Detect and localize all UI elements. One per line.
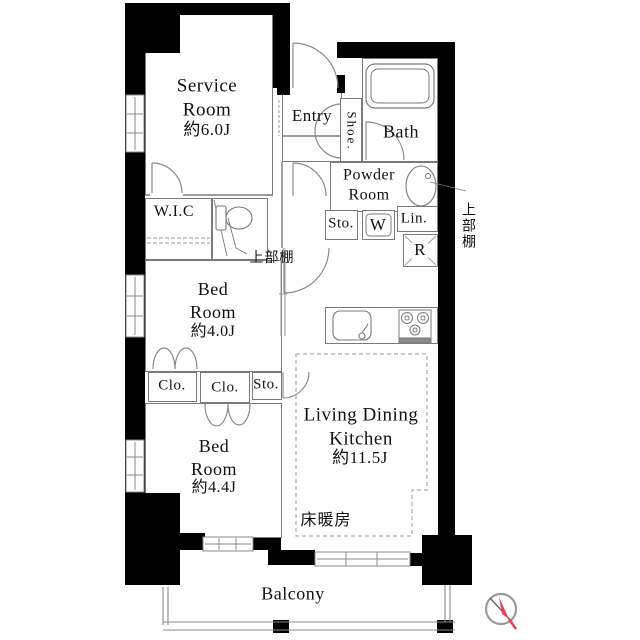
- toilet-shelf-label: 上部棚: [250, 249, 295, 267]
- washer-label: W: [370, 214, 387, 236]
- ldk-label: Living Dining Kitchen: [296, 404, 426, 453]
- linen-label: Lin.: [401, 209, 428, 228]
- closet-2-label: Clo.: [211, 378, 238, 397]
- floorplan-linework: [0, 0, 640, 640]
- bed-room-1-label: Bed Room: [178, 278, 248, 324]
- bed-storage-label: Sto.: [253, 375, 279, 394]
- powder-room-label: Powder Room: [325, 166, 413, 207]
- wall-shelf-label: 上部棚: [459, 202, 477, 250]
- ldk-size: 約11.5J: [332, 447, 388, 469]
- wall-thin-lines: [145, 136, 340, 248]
- closet-1-label: Clo.: [158, 376, 185, 395]
- closet-1-bifold: [153, 348, 197, 369]
- window-bed1-left: [126, 275, 144, 337]
- service-room-size: 約6.0J: [183, 119, 230, 141]
- window-service-left: [126, 95, 144, 152]
- closet-2-bifold: [205, 404, 250, 426]
- window-bed2-bottom: [203, 537, 253, 551]
- wic-label: W.I.C: [154, 202, 194, 222]
- hall-storage-label: Sto.: [328, 214, 354, 233]
- shoe-label: Shoe.: [343, 111, 360, 150]
- floor-heating-label: 床暖房: [300, 511, 351, 531]
- bed-room-2-label: Bed Room: [179, 435, 249, 481]
- bath-label: Bath: [383, 120, 419, 143]
- service-room-label: Service Room: [151, 75, 263, 124]
- wic-hanger-pipe: [147, 238, 210, 243]
- fridge-label: R: [412, 239, 428, 261]
- bed-room-1-size: 約4.0J: [191, 322, 236, 342]
- compass-icon: [486, 594, 516, 629]
- kitchen-sink: [333, 311, 371, 340]
- bed-room-2-size: 約4.4J: [192, 478, 237, 498]
- wic-door-arc: [152, 163, 182, 193]
- powder-door-arc: [293, 163, 326, 196]
- floor-plan: Service Room 約6.0J Entry Shoe. Bath Powd…: [0, 0, 640, 640]
- window-ldk-bottom: [315, 552, 410, 566]
- toilet: [214, 200, 252, 256]
- bathtub: [366, 64, 434, 108]
- entrance-door-arc: [293, 43, 338, 88]
- balcony-label: Balcony: [261, 582, 325, 605]
- stove: [399, 310, 431, 343]
- entry-label: Entry: [292, 105, 332, 127]
- window-bed2-left: [126, 440, 144, 492]
